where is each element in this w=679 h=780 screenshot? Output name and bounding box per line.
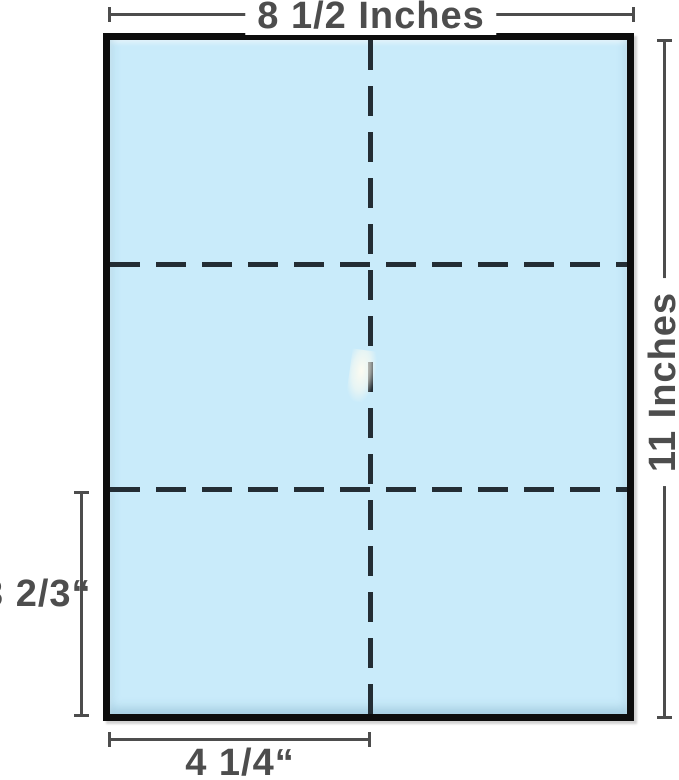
dimension-endcap-top — [657, 39, 672, 42]
dimension-endcap-bottom — [74, 714, 89, 717]
dimension-label-height: 11 Inches — [644, 278, 679, 486]
dimension-endcap-right — [368, 732, 371, 747]
dimension-label-half-width: 4 1/4“ — [185, 744, 295, 780]
dimension-endcap-top — [74, 491, 89, 494]
paper-dimensions-diagram: 8 1/2 Inches 11 Inches 3 2/3“ 4 1/4“ — [0, 0, 679, 780]
dimension-endcap-right — [632, 7, 635, 22]
dimension-endcap-left — [108, 7, 111, 22]
dimension-label-panel-height: 3 2/3“ — [0, 575, 92, 613]
dimension-endcap-left — [108, 732, 111, 747]
dimension-endcap-bottom — [657, 716, 672, 719]
dimension-label-width: 8 1/2 Inches — [245, 0, 496, 35]
dimension-rule — [108, 738, 371, 741]
